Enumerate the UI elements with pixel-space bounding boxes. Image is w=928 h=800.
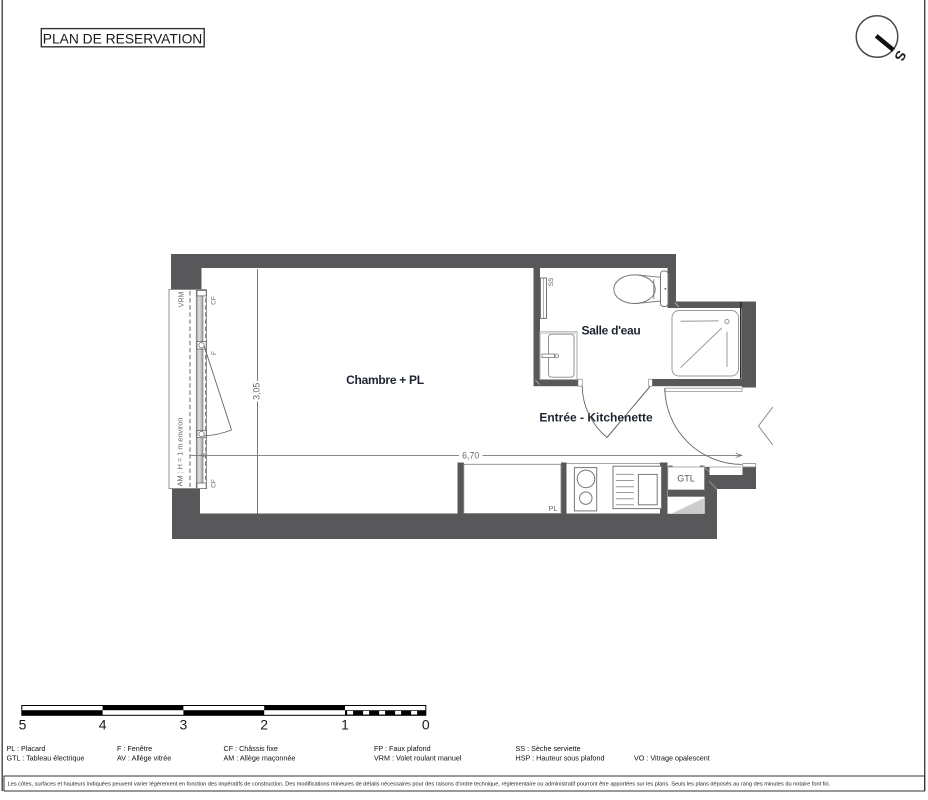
svg-text:0: 0 (422, 717, 430, 733)
svg-text:GTL : Tableau électrique: GTL : Tableau électrique (7, 753, 85, 762)
svg-text:VO : Vitrage opalescent: VO : Vitrage opalescent (634, 753, 710, 762)
svg-text:AV : Allège vitrée: AV : Allège vitrée (117, 753, 171, 762)
svg-text:CF: CF (211, 296, 218, 305)
svg-text:FP : Faux plafond: FP : Faux plafond (374, 744, 431, 753)
svg-text:PLAN DE RESERVATION: PLAN DE RESERVATION (43, 32, 202, 47)
svg-text:Chambre + PL: Chambre + PL (346, 373, 424, 387)
svg-text:GTL: GTL (677, 473, 695, 483)
svg-text:F : Fenêtre: F : Fenêtre (117, 744, 152, 753)
svg-text:AM : H = 1 m environ: AM : H = 1 m environ (176, 418, 185, 487)
svg-text:VRM : Volet roulant manuel: VRM : Volet roulant manuel (374, 753, 462, 762)
svg-text:SS: SS (548, 278, 555, 287)
svg-text:3: 3 (180, 717, 188, 733)
svg-text:6,70: 6,70 (462, 451, 479, 461)
svg-text:Les côtes, surfaces et hauteur: Les côtes, surfaces et hauteurs indiquée… (8, 782, 831, 788)
svg-text:5: 5 (19, 717, 27, 733)
svg-text:3,05: 3,05 (252, 383, 262, 400)
svg-text:AM : Allège maçonnée: AM : Allège maçonnée (224, 753, 296, 762)
svg-text:CF : Châssis fixe: CF : Châssis fixe (224, 744, 278, 753)
svg-text:2: 2 (260, 717, 268, 733)
svg-text:1: 1 (341, 717, 349, 733)
svg-text:SS : Sèche serviette: SS : Sèche serviette (516, 744, 581, 753)
svg-text:Salle d'eau: Salle d'eau (582, 324, 641, 338)
svg-text:PL: PL (548, 504, 557, 513)
svg-text:PL : Placard: PL : Placard (7, 744, 46, 753)
svg-text:F: F (211, 351, 218, 355)
svg-text:CF: CF (211, 479, 218, 488)
svg-text:VRM: VRM (178, 292, 185, 308)
svg-text:HSP : Hauteur sous plafond: HSP : Hauteur sous plafond (516, 753, 605, 762)
svg-text:Entrée - Kitchenette: Entrée - Kitchenette (539, 411, 653, 425)
svg-text:4: 4 (99, 717, 107, 733)
